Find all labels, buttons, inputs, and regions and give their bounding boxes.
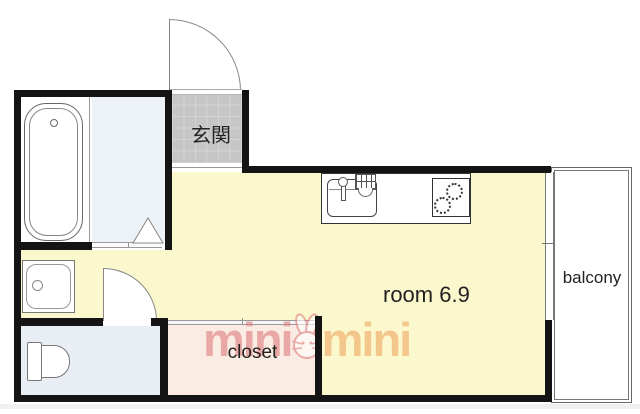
wall-closet-right bbox=[315, 316, 322, 395]
wall-main-top bbox=[242, 166, 551, 173]
entrance-label: 玄関 bbox=[181, 119, 241, 148]
wall-toilet-top bbox=[14, 318, 103, 326]
entrance-threshold bbox=[170, 89, 242, 95]
washroom-folding-door-icon bbox=[132, 217, 164, 245]
window-tick bbox=[542, 243, 555, 244]
entrance-door-arc bbox=[169, 19, 241, 91]
toilet-tank bbox=[27, 342, 42, 381]
wall-toilet-right bbox=[160, 318, 168, 395]
plan-shadow bbox=[0, 404, 640, 409]
window-balcony bbox=[545, 172, 554, 320]
wall-right-lower bbox=[545, 320, 552, 395]
bathtub-faucet-hole bbox=[50, 119, 58, 127]
stove-burner-2 bbox=[434, 197, 451, 214]
watermark-text-right: mini bbox=[322, 316, 411, 363]
balcony-label: balcony bbox=[556, 268, 628, 288]
entrance-step-line bbox=[172, 167, 242, 168]
wall-bath-bottom bbox=[14, 242, 92, 250]
wall-entrance-right bbox=[242, 90, 249, 173]
washing-pan-drain bbox=[32, 280, 43, 291]
stove-burner-1 bbox=[446, 183, 463, 200]
wall-bath-top bbox=[14, 90, 172, 97]
bathtub-inner bbox=[29, 108, 78, 236]
bath-washroom-divider bbox=[89, 96, 90, 242]
wall-bottom bbox=[14, 395, 552, 402]
faucet-knob bbox=[338, 177, 348, 187]
wall-bath-right bbox=[165, 90, 172, 250]
floor-plan: mini mini 玄関 room 6.9 balcony closet bbox=[0, 0, 640, 414]
washroom-door-tick bbox=[128, 242, 129, 248]
main-room-label: room 6.9 bbox=[383, 282, 470, 308]
closet-label: closet bbox=[206, 342, 299, 364]
